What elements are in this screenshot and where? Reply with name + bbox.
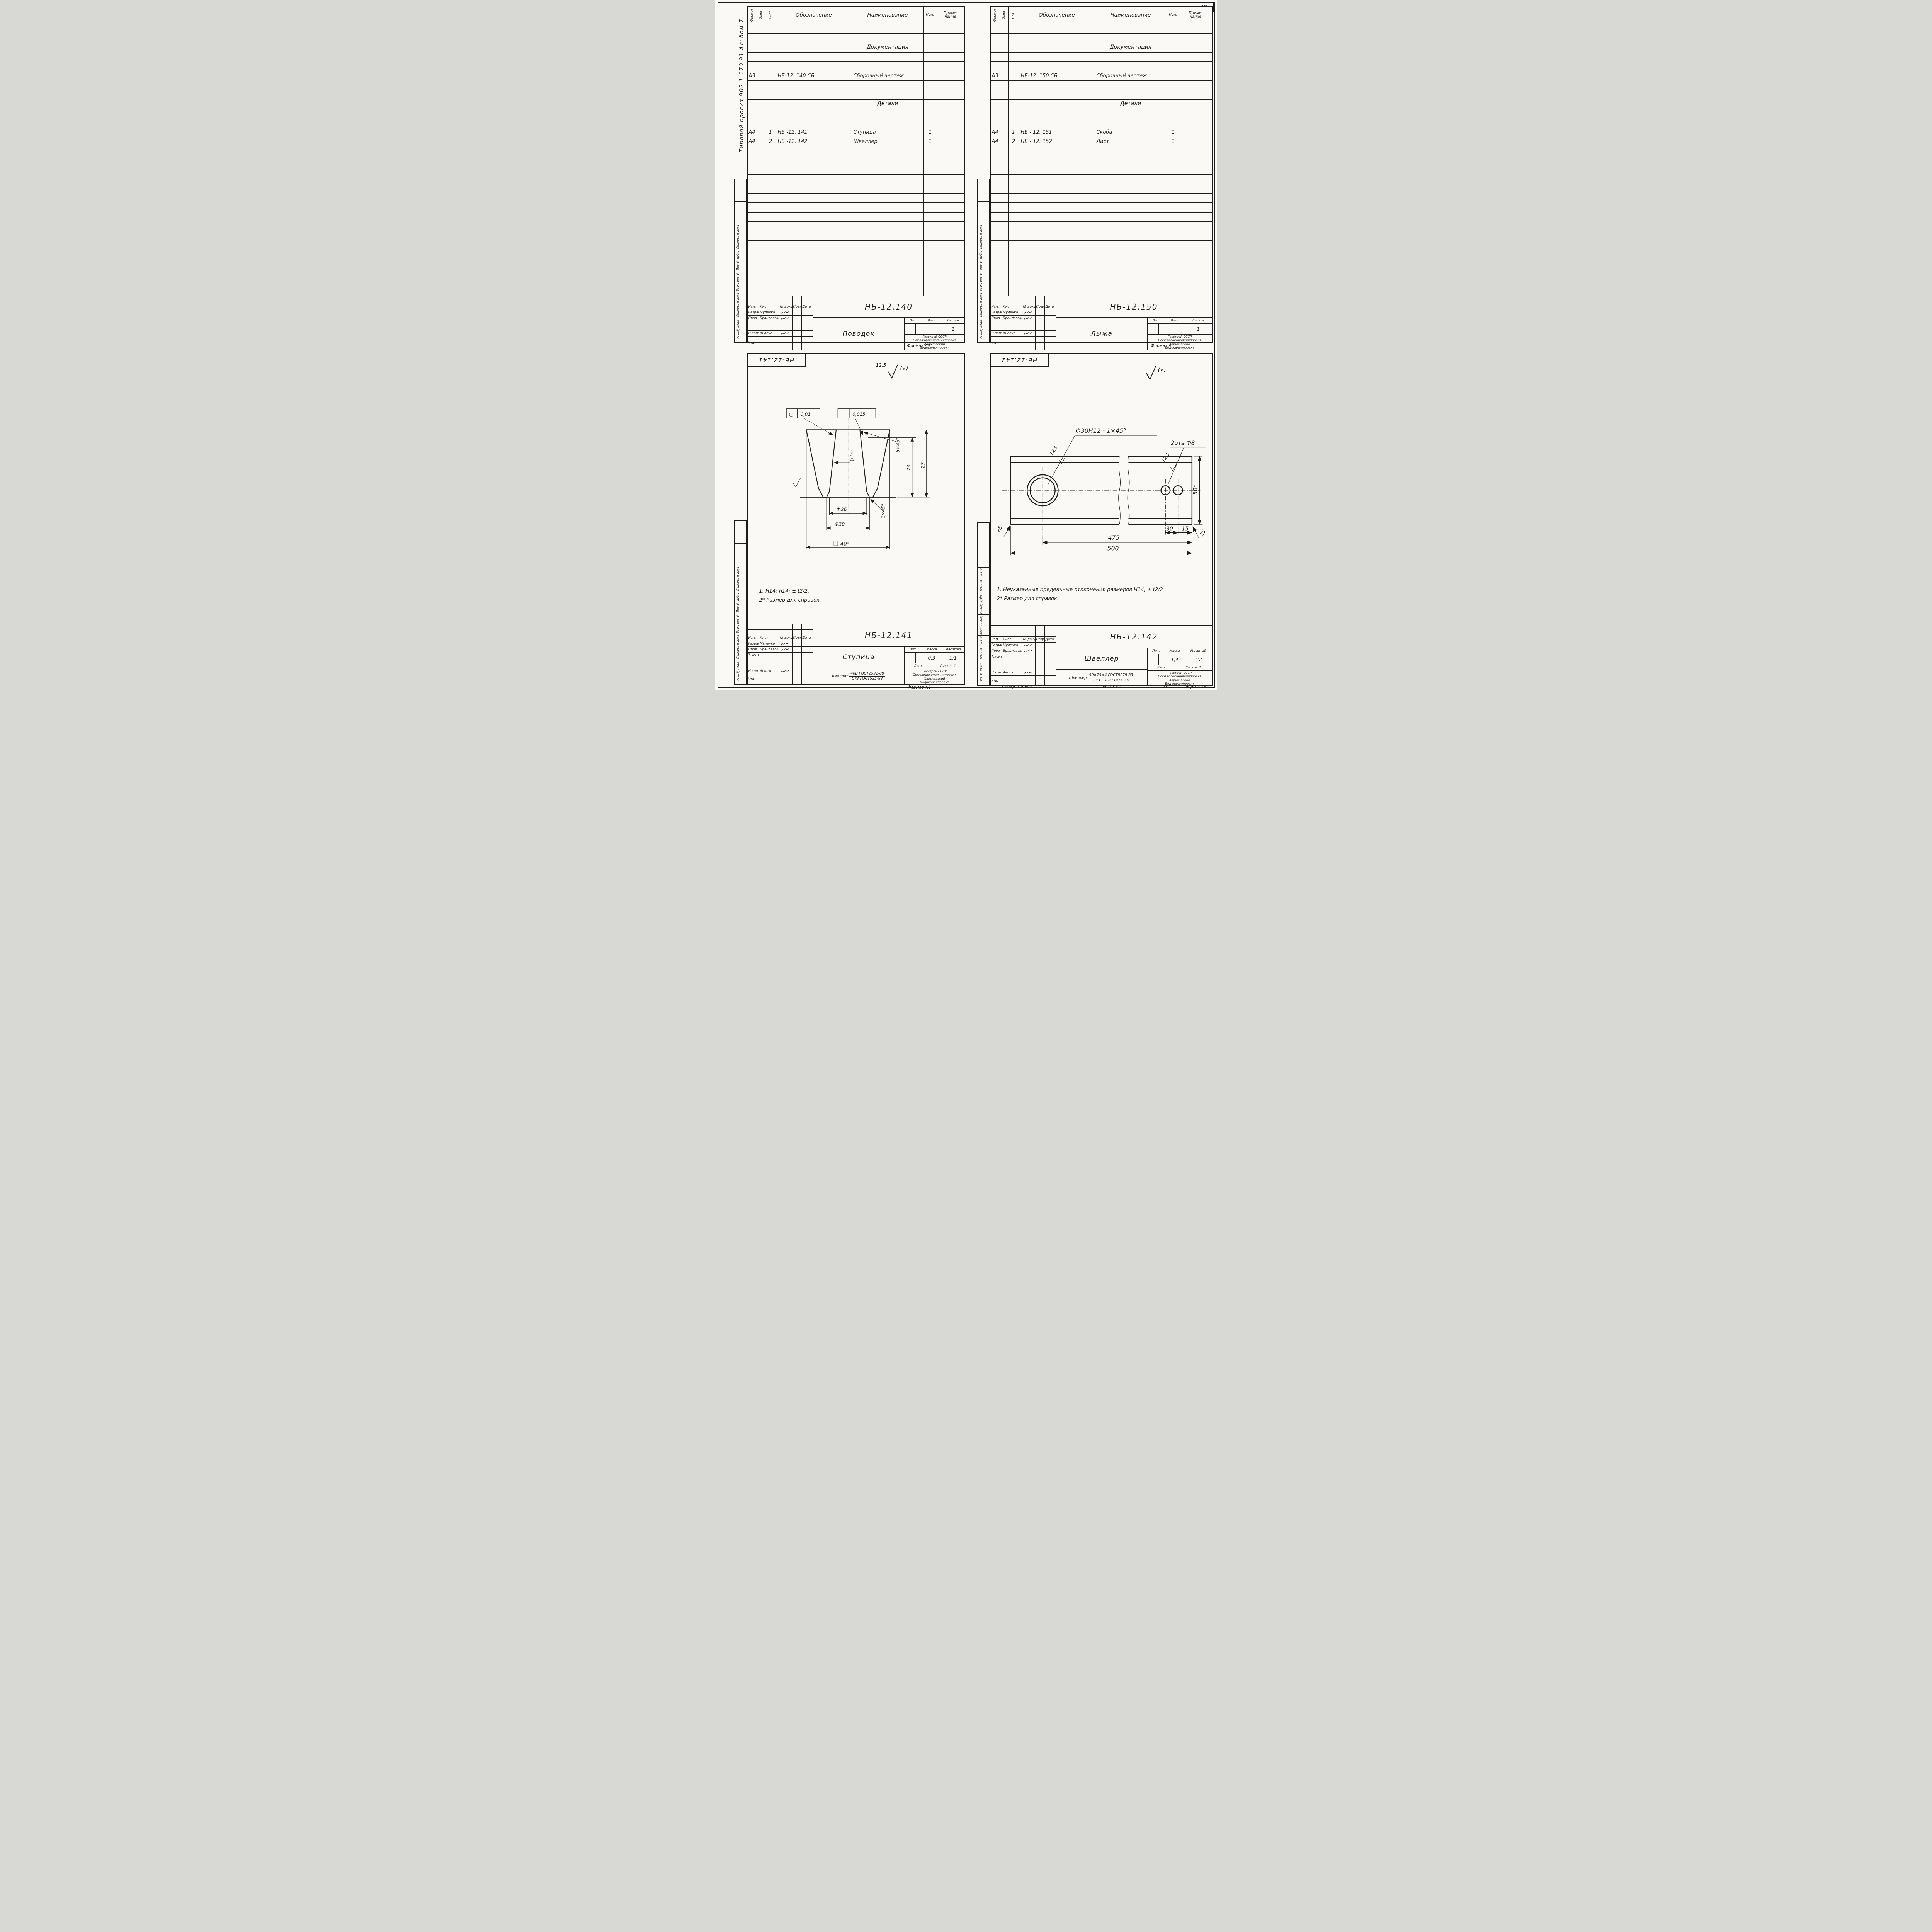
stamp-box: Инв.№ подл. xyxy=(735,318,746,339)
spec-cell xyxy=(1009,287,1019,296)
spec-sheet-lyzha: Формат Зона Поз. Обозначение Наименовани… xyxy=(990,6,1213,343)
roughness-12-5: 12,5 xyxy=(1160,452,1170,463)
spec-cell xyxy=(852,109,924,118)
titleblock-cell xyxy=(779,296,793,300)
stamp-label xyxy=(978,179,984,201)
title-block: Изм.Лист№ докум.Подп.ДатаРазраб.МуленкоП… xyxy=(991,296,1212,342)
spec-cell xyxy=(765,71,776,81)
titleblock-cell: Утв. xyxy=(748,337,759,350)
spec-cell xyxy=(1180,34,1212,43)
spec-cell xyxy=(1180,24,1212,34)
spec-cell xyxy=(765,241,776,250)
dim-50: 50* xyxy=(1192,485,1199,495)
spec-cell xyxy=(937,90,964,99)
spec-cell: НБ-12. 140 СБ xyxy=(776,71,852,81)
spec-cell xyxy=(1000,156,1009,165)
spec-sheet-povodok: Формат Зона Лист Обозначение Наименовани… xyxy=(747,6,965,343)
titleblock-cell xyxy=(1036,316,1045,321)
titleblock-cell: Анопко xyxy=(759,331,779,336)
spec-cell xyxy=(765,231,776,240)
titleblock-cell xyxy=(802,321,813,330)
stamp-cell xyxy=(984,224,989,250)
spec-cell xyxy=(1019,90,1095,99)
titleblock-row xyxy=(748,624,813,630)
titleblock-cell xyxy=(793,630,802,635)
spec-cell xyxy=(1180,287,1212,296)
lit-mass-scale-header: Лит.МассаМасштаб xyxy=(905,647,964,653)
spec-cell xyxy=(852,287,924,296)
spec-cell: А4 xyxy=(748,137,757,146)
spec-cell xyxy=(776,156,852,165)
spec-cell xyxy=(748,53,757,62)
part-name: Швеллер xyxy=(1056,648,1147,669)
titleblock-cell: Подп. xyxy=(1036,637,1045,642)
stamp-cell xyxy=(741,271,746,292)
spec-cell xyxy=(748,222,757,231)
hole-callout: Ф30Н12 - 1×45° xyxy=(1075,427,1126,434)
hub-section-drawing: ○ 0,01 — 0,015 Ф26 Ф30 xyxy=(768,404,935,584)
titleblock-cell xyxy=(793,316,802,321)
spec-cell xyxy=(1009,90,1019,99)
spec-cell xyxy=(1019,203,1095,212)
spec-cell xyxy=(991,43,1000,53)
titleblock-cell xyxy=(793,300,802,304)
title-block-right: НБ-12.150 Лыжа Лит.ЛистЛистов 1 Госстрой… xyxy=(1056,296,1212,350)
spec-cell xyxy=(1009,100,1019,109)
titleblock-cell xyxy=(991,321,1002,330)
spec-cell xyxy=(1167,194,1180,203)
spec-cell xyxy=(1095,278,1167,287)
titleblock-cell: Разраб. xyxy=(991,310,1002,315)
titleblock-cell xyxy=(779,624,793,629)
spec-cell xyxy=(757,24,765,34)
stamp-cell xyxy=(984,545,989,567)
spec-cell xyxy=(1009,53,1019,62)
spec-cell xyxy=(765,118,776,128)
spec-cell xyxy=(765,53,776,62)
dim-d26: Ф26 xyxy=(836,507,847,512)
stamp-cell xyxy=(984,250,989,271)
stamp-label: Инв.№ дубл. xyxy=(978,594,984,614)
spec-cell xyxy=(1000,213,1009,222)
spec-cell xyxy=(1095,250,1167,259)
col-qty: Кол. xyxy=(1167,7,1180,24)
spec-cell xyxy=(991,269,1000,278)
spec-cell xyxy=(765,278,776,287)
stamp-label: Подпись и дата xyxy=(735,224,741,250)
spec-cell xyxy=(852,213,924,222)
titleblock-cell xyxy=(779,658,793,668)
spec-cell xyxy=(1019,81,1095,90)
spec-cell xyxy=(1167,231,1180,240)
spec-cell xyxy=(1000,278,1009,287)
titleblock-cell xyxy=(991,631,1002,636)
titleblock-cell xyxy=(802,316,813,321)
spec-cell xyxy=(924,100,937,109)
spec-cell xyxy=(937,287,964,296)
stamp-cell xyxy=(741,566,746,592)
titleblock-cell xyxy=(1022,670,1036,675)
title-block-left: Изм.Лист№ докум.Подп.ДатаРазраб.МуленкоП… xyxy=(991,296,1056,350)
signature xyxy=(1023,643,1033,648)
stamp-cell xyxy=(984,318,989,339)
titleblock-cell: Н.контр. xyxy=(991,331,1002,336)
titleblock-row: Пров.Брацлавский xyxy=(748,647,813,653)
stamp-cell xyxy=(984,292,989,318)
spec-cell xyxy=(924,165,937,175)
titleblock-cell xyxy=(1002,300,1022,304)
spec-cell: Сборочный чертеж xyxy=(1095,71,1167,81)
spec-cell xyxy=(1000,287,1009,296)
titleblock-row: Пров.Брацлавский xyxy=(991,648,1056,654)
titleblock-cell: Подп. xyxy=(793,635,802,641)
spec-cell xyxy=(1000,241,1009,250)
stamp-cell xyxy=(984,594,989,614)
titleblock-cell xyxy=(1045,631,1056,636)
titleblock-cell xyxy=(1022,626,1036,631)
titleblock-cell xyxy=(793,337,802,350)
spec-cell xyxy=(852,175,924,184)
signature xyxy=(780,331,790,336)
stamp-box: Взам. инв.№ xyxy=(735,271,746,292)
titleblock-cell: Брацлавский xyxy=(759,316,779,321)
taper-label: ▷1:5 xyxy=(849,450,854,461)
titleblock-cell xyxy=(779,331,793,336)
footer-page-number: 41 xyxy=(1163,685,1168,689)
spec-cell xyxy=(991,146,1000,156)
spec-cell xyxy=(757,194,765,203)
stamp-box: Подпись и дата xyxy=(978,636,989,662)
spec-cell xyxy=(757,278,765,287)
titleblock-cell xyxy=(748,630,759,635)
titleblock-cell xyxy=(748,658,759,668)
titleblock-cell xyxy=(1022,296,1036,300)
spec-cell xyxy=(748,156,757,165)
titleblock-cell xyxy=(802,630,813,635)
spec-cell xyxy=(924,250,937,259)
stamp-label: Взам. инв.№ xyxy=(978,615,984,635)
spec-cell xyxy=(1180,43,1212,53)
titleblock-cell xyxy=(759,296,779,300)
spec-cell xyxy=(1167,241,1180,250)
spec-cell xyxy=(937,175,964,184)
titleblock-cell: № докум. xyxy=(1022,304,1036,310)
spec-cell xyxy=(991,24,1000,34)
stamp-box: Инв.№ дубл. xyxy=(735,250,746,271)
stamp-cell xyxy=(741,318,746,339)
titleblock-cell xyxy=(1045,321,1056,330)
stamp-label: Подпись и дата xyxy=(735,292,741,318)
titleblock-row: Н.контр.Анопко xyxy=(991,670,1056,676)
spec-cell xyxy=(1019,118,1095,128)
spec-cell xyxy=(1095,184,1167,194)
spec-cell xyxy=(852,222,924,231)
doc-number: НБ-12.142 xyxy=(1056,626,1212,648)
spec-cell xyxy=(991,259,1000,269)
titleblock-cell xyxy=(1036,321,1045,330)
spec-cell xyxy=(1095,165,1167,175)
spec-cell xyxy=(937,269,964,278)
roughness-rest: (√) xyxy=(1158,366,1166,373)
spec-cell xyxy=(757,241,765,250)
spec-cell xyxy=(937,184,964,194)
scanned-drawing-page: Типовой проект 902-1-170.91 Альбом 7 40 … xyxy=(715,0,1217,690)
spec-cell xyxy=(852,156,924,165)
titleblock-cell xyxy=(1045,337,1056,350)
roughness-value: 12,5 xyxy=(876,362,886,368)
spec-cell xyxy=(1000,146,1009,156)
stamp-cell xyxy=(741,660,746,681)
titleblock-cell: Разраб. xyxy=(991,643,1002,648)
format-note: Формат А4 xyxy=(907,344,930,348)
organization: Госстрой СССР Союзводоканалниипроект Хар… xyxy=(905,669,964,685)
spec-cell xyxy=(1009,118,1019,128)
spec-cell xyxy=(924,222,937,231)
titleblock-cell xyxy=(1022,643,1036,648)
spec-cell xyxy=(1167,287,1180,296)
part-name: Лыжа xyxy=(1056,318,1147,350)
titleblock-cell: Дата xyxy=(1045,304,1056,310)
spec-cell xyxy=(924,118,937,128)
order-number: 25017-07 xyxy=(1102,685,1121,689)
spec-cell xyxy=(924,278,937,287)
stamp-label xyxy=(978,202,984,224)
spec-cell xyxy=(852,90,924,99)
spec-cell xyxy=(757,137,765,146)
title-block-left: Изм.Лист№ докум.Подп.ДатаРазраб.МуленкоП… xyxy=(748,624,813,685)
spec-cell xyxy=(1167,222,1180,231)
stamp-strip: Подпись и датаИнв.№ дубл.Взам. инв.№Подп… xyxy=(977,179,990,343)
spec-cell xyxy=(924,90,937,99)
spec-cell xyxy=(991,156,1000,165)
title-block-right: НБ-12.141 Ступица Квадрат 40В ГОСТ2591-8… xyxy=(813,624,964,685)
col-name: Наименование xyxy=(852,7,924,24)
spec-table-body: ДокументацияА3НБ-12. 150 СБСборочный чер… xyxy=(991,24,1212,296)
col-format: Формат xyxy=(748,7,757,24)
spec-cell xyxy=(1000,259,1009,269)
spec-cell xyxy=(1180,165,1212,175)
drawing-sheet-stupitsa: НБ-12.141 12,5 (√) xyxy=(747,353,965,685)
spec-cell xyxy=(1180,231,1212,240)
spec-cell xyxy=(1167,146,1180,156)
spec-cell xyxy=(991,278,1000,287)
spec-cell xyxy=(937,34,964,43)
titleblock-cell xyxy=(1045,670,1056,675)
spec-cell xyxy=(991,222,1000,231)
spec-cell xyxy=(924,24,937,34)
spec-cell xyxy=(748,24,757,34)
spec-cell xyxy=(1009,175,1019,184)
spec-cell xyxy=(852,203,924,212)
spec-cell xyxy=(748,203,757,212)
titleblock-cell: Подп. xyxy=(1036,304,1045,310)
titleblock-row xyxy=(991,631,1056,637)
scale-value: 1:2 xyxy=(1185,654,1212,665)
titleblock-cell xyxy=(802,337,813,350)
spec-cell xyxy=(1095,24,1167,34)
spec-cell xyxy=(1167,278,1180,287)
titleblock-cell: Изм. xyxy=(991,637,1002,642)
stamp-box: Инв.№ дубл. xyxy=(735,592,746,613)
format-note: ФорматА4 xyxy=(1185,685,1206,689)
spec-cell xyxy=(748,269,757,278)
titleblock-cell xyxy=(802,331,813,336)
spec-cell xyxy=(937,71,964,81)
spec-cell xyxy=(757,128,765,137)
titleblock-cell: Н.контр. xyxy=(748,668,759,674)
spec-cell xyxy=(1009,184,1019,194)
spec-cell xyxy=(1000,184,1009,194)
spec-cell xyxy=(991,194,1000,203)
spec-cell xyxy=(1167,81,1180,90)
spec-cell xyxy=(937,24,964,34)
spec-table-body: ДокументацияА3НБ-12. 140 СБСборочный чер… xyxy=(748,24,964,296)
spec-cell xyxy=(1095,156,1167,165)
stamp-strip: Подпись и датаИнв.№ дубл.Взам. инв.№Подп… xyxy=(977,522,990,686)
spec-cell xyxy=(924,62,937,71)
spec-cell xyxy=(937,118,964,128)
col-qty: Кол. xyxy=(924,7,937,24)
spec-cell: Лист xyxy=(1095,137,1167,146)
spec-cell xyxy=(852,241,924,250)
spec-table-header: Формат Зона Лист Обозначение Наименовани… xyxy=(748,7,964,24)
titleblock-row xyxy=(748,296,813,300)
titleblock-row: Изм.Лист№ докум.Подп.Дата xyxy=(748,304,813,310)
spec-cell xyxy=(1180,81,1212,90)
titleblock-cell xyxy=(759,658,779,668)
titleblock-cell xyxy=(802,674,813,684)
spec-cell xyxy=(1019,259,1095,269)
stamp-label: Подпись и дата xyxy=(978,224,984,250)
spec-cell xyxy=(1180,90,1212,99)
stamp-cell xyxy=(984,636,989,662)
spec-cell xyxy=(1019,146,1095,156)
spec-cell xyxy=(1000,109,1009,118)
titleblock-cell xyxy=(1036,337,1045,350)
spec-cell xyxy=(776,175,852,184)
titleblock-cell xyxy=(1036,310,1045,315)
stamp-label xyxy=(735,544,741,566)
spec-cell xyxy=(1167,259,1180,269)
spec-cell xyxy=(924,81,937,90)
spec-cell xyxy=(852,53,924,62)
sheets-count: 1 xyxy=(1185,324,1212,334)
spec-cell xyxy=(1167,34,1180,43)
spec-cell xyxy=(991,100,1000,109)
spec-cell xyxy=(991,203,1000,212)
spec-cell xyxy=(1009,24,1019,34)
stamp-cell xyxy=(741,521,746,543)
spec-cell xyxy=(1009,62,1019,71)
titleblock-cell xyxy=(779,316,793,321)
stamp-cell xyxy=(984,615,989,635)
spec-cell xyxy=(852,34,924,43)
spec-cell xyxy=(1180,156,1212,165)
spec-cell xyxy=(776,109,852,118)
spec-cell xyxy=(1009,231,1019,240)
spec-cell: 1 xyxy=(765,128,776,137)
spec-cell xyxy=(1000,100,1009,109)
spec-cell xyxy=(1095,34,1167,43)
spec-cell xyxy=(991,287,1000,296)
titleblock-cell xyxy=(759,630,779,635)
lit-mass-scale-header: Лит.МассаМасштаб xyxy=(1148,648,1212,654)
project-number-text: Типовой проект 902-1-170.91 Альбом 7 xyxy=(738,19,745,153)
spec-cell xyxy=(748,118,757,128)
titleblock-cell xyxy=(991,660,1002,670)
spec-cell xyxy=(852,231,924,240)
titleblock-cell xyxy=(1036,676,1045,686)
spec-cell: Швеллер xyxy=(852,137,924,146)
spec-cell xyxy=(1000,81,1009,90)
spec-cell xyxy=(765,109,776,118)
spec-cell xyxy=(1000,269,1009,278)
titleblock-cell: Разраб. xyxy=(748,641,759,646)
spec-cell xyxy=(1009,250,1019,259)
section-header: Документация xyxy=(1106,44,1155,51)
spec-cell xyxy=(765,62,776,71)
spec-cell xyxy=(757,231,765,240)
spec-cell xyxy=(1009,259,1019,269)
spec-cell xyxy=(757,81,765,90)
surface-roughness-mark: 12,5 (√) xyxy=(876,364,908,379)
titleblock-cell: Муленко xyxy=(1002,643,1022,648)
titleblock-cell xyxy=(1022,300,1036,304)
stamp-box xyxy=(735,521,746,544)
titleblock-cell xyxy=(779,300,793,304)
spec-cell: 1 xyxy=(1009,128,1019,137)
spec-cell xyxy=(757,100,765,109)
spec-cell xyxy=(757,259,765,269)
sheet-count-row: Лист Листов1 xyxy=(905,663,964,669)
titleblock-row xyxy=(748,300,813,304)
channel-drawing: Ф30Н12 - 1×45° 12,5 2отв.Ф8 12,5 30 15 4… xyxy=(995,400,1207,562)
spec-cell xyxy=(757,203,765,212)
titleblock-cell xyxy=(779,337,793,350)
spec-cell xyxy=(1019,184,1095,194)
sheets-count: 1 xyxy=(942,324,964,334)
titleblock-row: Пров.Брацлавский xyxy=(991,316,1056,321)
titleblock-cell: Анопко xyxy=(1002,331,1022,336)
spec-cell xyxy=(924,34,937,43)
spec-cell xyxy=(1095,146,1167,156)
lit-header: Лит.ЛистЛистов xyxy=(1148,318,1212,324)
titleblock-cell: Пров. xyxy=(991,648,1002,654)
spec-cell xyxy=(937,259,964,269)
stamp-label: Подпись и дата xyxy=(978,636,984,662)
spec-cell: А3 xyxy=(748,71,757,81)
svg-text:0,015: 0,015 xyxy=(852,412,865,417)
spec-cell xyxy=(1167,62,1180,71)
spec-cell xyxy=(1167,165,1180,175)
stamp-cell xyxy=(984,271,989,292)
titleblock-cell xyxy=(1022,660,1036,670)
mass-value: 0,3 xyxy=(922,653,942,663)
spec-cell xyxy=(776,24,852,34)
spec-cell xyxy=(1019,213,1095,222)
spec-cell xyxy=(776,203,852,212)
stamp-label: Подпись и дата xyxy=(978,292,984,318)
titleblock-row: Т.контр. xyxy=(748,653,813,658)
spec-cell xyxy=(1167,100,1180,109)
stamp-box: Взам. инв.№ xyxy=(735,613,746,634)
titleblock-cell xyxy=(1036,626,1045,631)
stamp-box: Инв.№ подл. xyxy=(978,318,989,339)
spec-cell xyxy=(748,146,757,156)
col-format: Формат xyxy=(991,7,1000,24)
titleblock-cell xyxy=(779,310,793,315)
spec-cell xyxy=(937,137,964,146)
